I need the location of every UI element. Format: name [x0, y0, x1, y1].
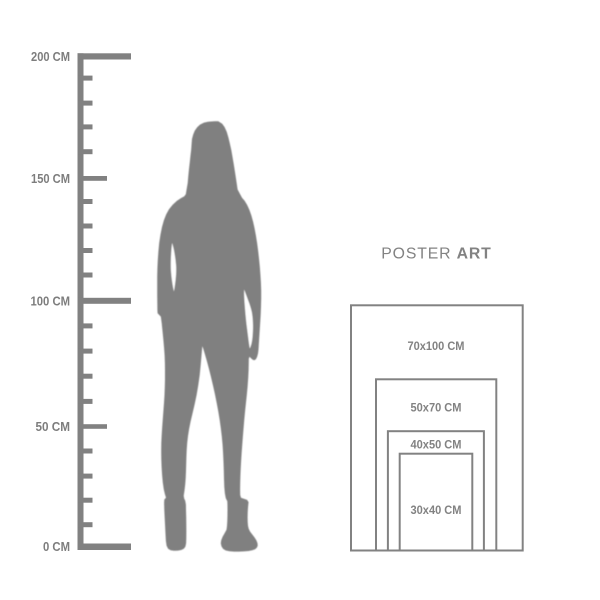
svg-text:150 CM: 150 CM: [31, 172, 70, 186]
svg-text:50 CM: 50 CM: [36, 420, 71, 434]
svg-text:0 CM: 0 CM: [43, 540, 70, 554]
svg-text:40x50 CM: 40x50 CM: [411, 438, 462, 451]
svg-text:30x40 CM: 30x40 CM: [411, 504, 462, 517]
svg-text:POSTER ART: POSTER ART: [381, 245, 491, 262]
svg-text:70x100 CM: 70x100 CM: [408, 340, 465, 353]
svg-text:50x70 CM: 50x70 CM: [411, 402, 462, 415]
svg-text:100 CM: 100 CM: [31, 294, 71, 308]
svg-text:200 CM: 200 CM: [31, 50, 70, 64]
